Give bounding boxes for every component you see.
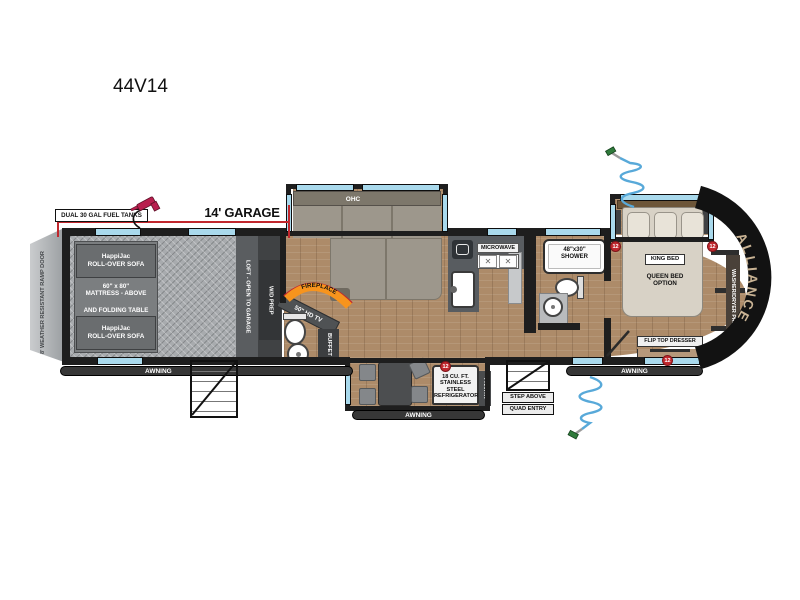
dresser-label: FLIP TOP DRESSER <box>644 338 696 344</box>
window <box>95 228 141 236</box>
12v-badge: 12 <box>440 361 451 372</box>
folding-table-label: AND FOLDING TABLE <box>76 307 156 314</box>
badge-text: 12 <box>709 244 715 250</box>
washer-dryer-label: WASHER/DRYER PREP <box>730 269 736 329</box>
half-bath-toilet <box>284 319 306 345</box>
step-above-text: STEP ABOVE <box>510 394 546 400</box>
dinette-slide-walls <box>345 358 490 411</box>
loft-label: LOFT - OPEN TO GARAGE <box>244 260 251 333</box>
prep-sink <box>452 240 473 259</box>
wall-bedroom-entry <box>604 318 611 358</box>
quad-entry-text: QUAD ENTRY <box>510 406 547 412</box>
floorplan-canvas: 44V14 8' WEATHER RESISTANT RAMP DOOR Hap… <box>0 0 800 600</box>
garage-length-label: 14' GARAGE <box>198 205 286 220</box>
burner: ✕ <box>479 255 497 268</box>
wall-bath-bottom <box>538 323 580 330</box>
buffet: BUFFET <box>318 329 339 360</box>
quad-entry-steps <box>506 360 550 391</box>
window <box>545 228 601 236</box>
bedroom-slide-walls <box>610 194 714 242</box>
window <box>708 204 714 240</box>
model-title: 44V14 <box>113 76 168 98</box>
awning-label: AWNING <box>621 368 648 375</box>
rollover-sofa-bottom: HappiJac ROLL-OVER SOFA <box>76 316 156 350</box>
king-bed-label: KING BED <box>645 254 685 265</box>
window <box>442 194 448 232</box>
mattress-line1: 60" x 80" <box>76 283 156 290</box>
awning-bar-dinette: AWNING <box>352 410 485 420</box>
12v-badge: 12 <box>610 241 621 252</box>
ramp-door-label: 8' WEATHER RESISTANT RAMP DOOR <box>40 238 46 354</box>
12v-badge: 12 <box>662 355 673 366</box>
cooktop: ✕ ✕ <box>477 254 519 269</box>
fuel-tanks-text: DUAL 30 GAL FUEL TANKS <box>61 212 142 219</box>
12v-badge: 12 <box>707 241 718 252</box>
faucet <box>450 286 457 293</box>
window <box>487 228 517 236</box>
bath-sink <box>543 297 563 317</box>
wall-garage-left <box>62 228 70 365</box>
window <box>620 194 704 201</box>
wall-garage-living <box>280 235 286 303</box>
power-cord-coil-bottom <box>568 377 601 439</box>
sofa-label-line1: HappiJac <box>88 253 145 261</box>
sofa-label-line2: ROLL-OVER SOFA <box>88 261 145 269</box>
wd-prep-label: W/D PREP <box>267 286 274 315</box>
sofa-armrest <box>330 288 350 301</box>
sink-drain <box>296 352 301 357</box>
window <box>572 357 603 365</box>
window <box>362 184 440 191</box>
buffet-label: BUFFET <box>325 333 332 356</box>
badge-text: 12 <box>612 244 618 250</box>
awning-label: AWNING <box>145 368 172 375</box>
wall-bath-left <box>524 235 536 333</box>
wd-prep-closet: W/D PREP <box>259 260 281 340</box>
garage-entry-steps <box>190 360 238 418</box>
living-slide-walls <box>286 184 448 236</box>
badge-text: 12 <box>442 364 448 370</box>
badge-text: 12 <box>664 358 670 364</box>
ramp-door: 8' WEATHER RESISTANT RAMP DOOR <box>30 226 64 366</box>
awning-label: AWNING <box>405 412 432 419</box>
dimension-tick-right <box>288 205 290 238</box>
king-bed-text: KING BED <box>651 256 679 263</box>
sofa2-label-line2: ROLL-OVER SOFA <box>88 333 145 341</box>
quad-entry-label: QUAD ENTRY <box>502 404 554 415</box>
awning-bar-bedroom: AWNING <box>566 366 703 376</box>
fuel-tanks-label: DUAL 30 GAL FUEL TANKS <box>55 209 148 222</box>
sofa2-label-line1: HappiJac <box>88 325 145 333</box>
dresser-slot <box>650 349 690 352</box>
shower-line2: SHOWER <box>545 254 604 261</box>
prep-sink-basin <box>456 244 469 255</box>
burner: ✕ <box>499 255 517 268</box>
wall-garage-bottom <box>62 357 288 365</box>
queen-line2: OPTION <box>631 280 699 287</box>
mattress-label: 60" x 80" MATTRESS - ABOVE AND FOLDING T… <box>76 283 156 314</box>
loft-band: LOFT - OPEN TO GARAGE <box>236 235 258 358</box>
rollover-sofa-top: HappiJac ROLL-OVER SOFA <box>76 244 156 278</box>
queen-option-label: QUEEN BED OPTION <box>631 273 699 287</box>
flip-top-dresser: FLIP TOP DRESSER <box>637 336 703 357</box>
window <box>610 204 616 240</box>
sink-drain <box>551 305 555 309</box>
window <box>188 228 236 236</box>
mattress-line2: MATTRESS - ABOVE <box>76 290 156 297</box>
shower: 48"x30" SHOWER <box>543 239 606 274</box>
shower-line1: 48"x30" <box>545 247 604 254</box>
kitchen-sink <box>451 271 475 308</box>
microwave-label: MICROWAVE <box>477 243 519 253</box>
queen-line1: QUEEN BED <box>631 273 699 280</box>
window <box>296 184 354 191</box>
window <box>97 357 143 365</box>
step-above-label: STEP ABOVE <box>502 392 554 403</box>
wall-bottom-left <box>288 357 350 365</box>
washer-dryer-closet: WASHER/DRYER PREP <box>726 255 740 343</box>
